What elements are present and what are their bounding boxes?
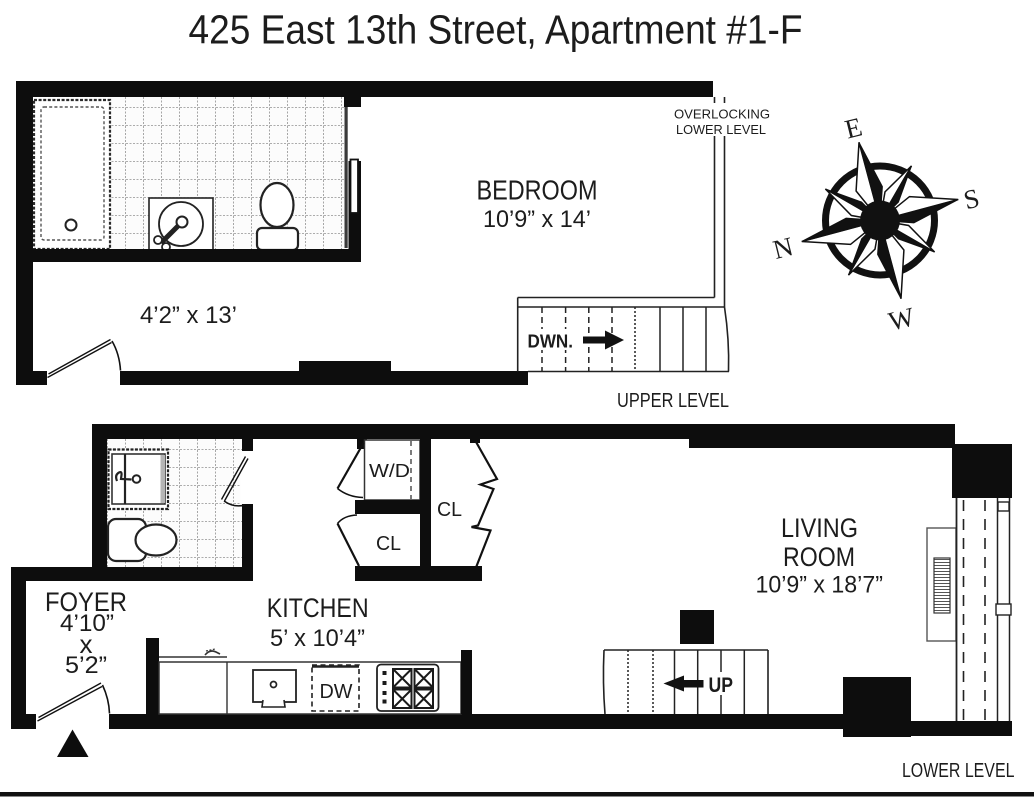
svg-text:DW: DW <box>320 681 353 703</box>
svg-text:4’2” x 13’: 4’2” x 13’ <box>140 302 237 329</box>
svg-text:W: W <box>886 301 918 336</box>
svg-text:LOWER LEVEL: LOWER LEVEL <box>676 122 766 137</box>
svg-text:LOWER LEVEL: LOWER LEVEL <box>902 760 1015 782</box>
svg-text:E: E <box>842 111 865 144</box>
svg-text:CL: CL <box>376 533 401 555</box>
svg-text:ROOM: ROOM <box>783 542 855 572</box>
svg-text:UPPER LEVEL: UPPER LEVEL <box>617 390 729 412</box>
svg-text:OVERLOCKING: OVERLOCKING <box>674 107 770 122</box>
svg-text:10’9” x 14’: 10’9” x 14’ <box>483 206 591 233</box>
svg-text:425 East 13th Street, Apartmen: 425 East 13th Street, Apartment #1-F <box>189 7 803 53</box>
svg-text:LIVING: LIVING <box>781 513 858 543</box>
svg-text:W/D: W/D <box>369 461 410 481</box>
svg-text:10’9” x 18’7”: 10’9” x 18’7” <box>755 572 883 599</box>
svg-text:5’2”: 5’2” <box>65 652 107 679</box>
svg-text:KITCHEN: KITCHEN <box>267 593 369 623</box>
svg-text:DWN.: DWN. <box>528 332 574 352</box>
svg-text:S: S <box>961 183 983 216</box>
svg-text:BEDROOM: BEDROOM <box>477 175 598 206</box>
svg-text:CL: CL <box>437 499 462 521</box>
svg-text:UP: UP <box>709 674 734 697</box>
svg-text:5’ x 10’4”: 5’ x 10’4” <box>270 625 365 652</box>
svg-text:N: N <box>770 231 796 265</box>
